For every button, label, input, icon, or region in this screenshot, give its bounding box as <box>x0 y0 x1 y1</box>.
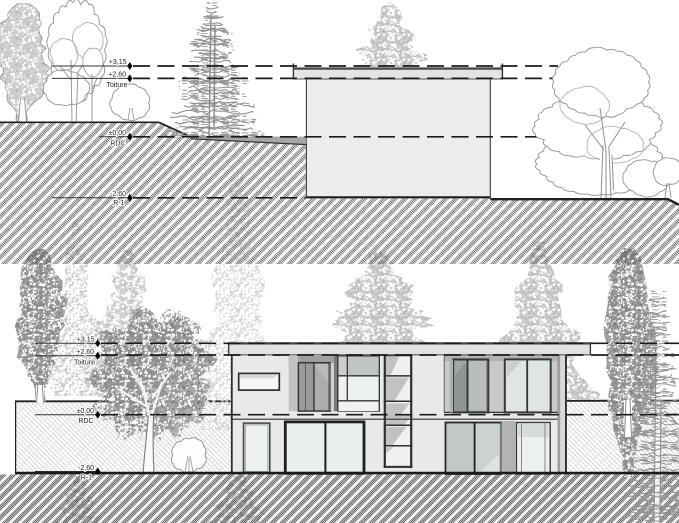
svg-text:+3,15: +3,15 <box>109 59 127 66</box>
svg-text:RDC: RDC <box>110 141 125 148</box>
svg-text:Toiture: Toiture <box>106 82 127 89</box>
svg-text:-2,60: -2,60 <box>78 465 94 472</box>
svg-text:-2,60: -2,60 <box>110 191 126 198</box>
svg-text:+2,60: +2,60 <box>108 72 126 79</box>
svg-text:+2,60: +2,60 <box>76 349 94 356</box>
svg-text:Toiture: Toiture <box>74 360 95 367</box>
svg-text:RDC: RDC <box>78 418 93 425</box>
svg-text:+3,15: +3,15 <box>77 337 95 344</box>
svg-text:R-1: R-1 <box>113 200 124 207</box>
svg-text:R-1: R-1 <box>81 475 92 482</box>
svg-text:±0,00: ±0,00 <box>77 408 95 415</box>
svg-text:±0,00: ±0,00 <box>109 130 127 137</box>
